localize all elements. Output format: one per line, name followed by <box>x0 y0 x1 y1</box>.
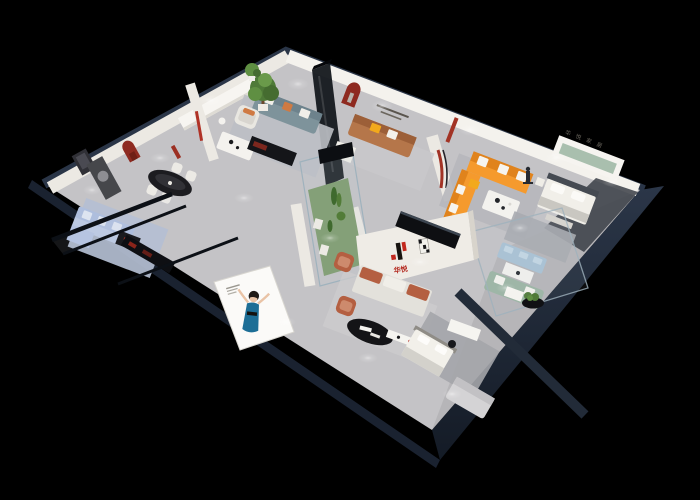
desk-chair <box>448 340 456 348</box>
showroom-render: 华 悦 家 居 <box>0 0 700 500</box>
checker-art <box>418 238 429 253</box>
floor-lamp <box>219 118 226 125</box>
scene-canvas: 华 悦 家 居 <box>0 0 700 500</box>
